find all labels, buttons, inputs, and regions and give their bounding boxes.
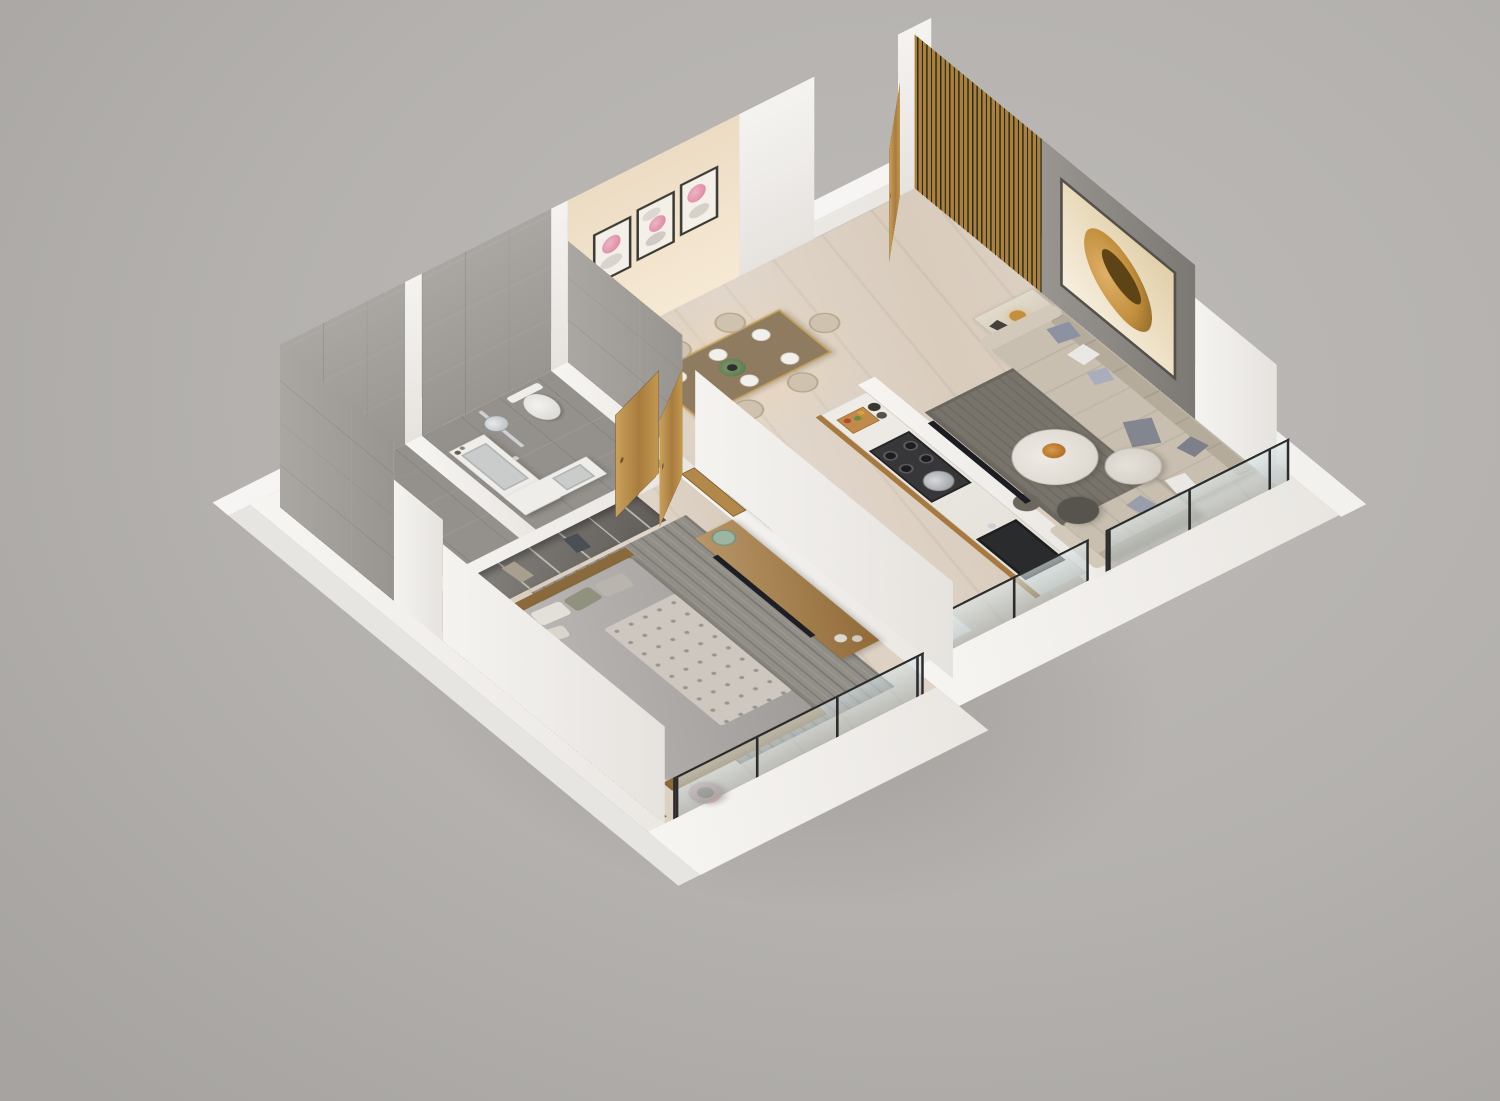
- bathroom2-door-handle: [620, 456, 623, 464]
- wall-art-frame-3: [680, 165, 718, 236]
- art-pebble-4: [689, 200, 709, 221]
- bath-divider-head-face: [405, 274, 422, 445]
- bedroom-door-handle: [662, 462, 664, 471]
- wall-art-frame-2: [636, 190, 674, 261]
- render-backdrop: [0, 0, 1500, 1101]
- entrance-door-handle: [890, 191, 891, 200]
- divider-head-face-2: [551, 200, 568, 371]
